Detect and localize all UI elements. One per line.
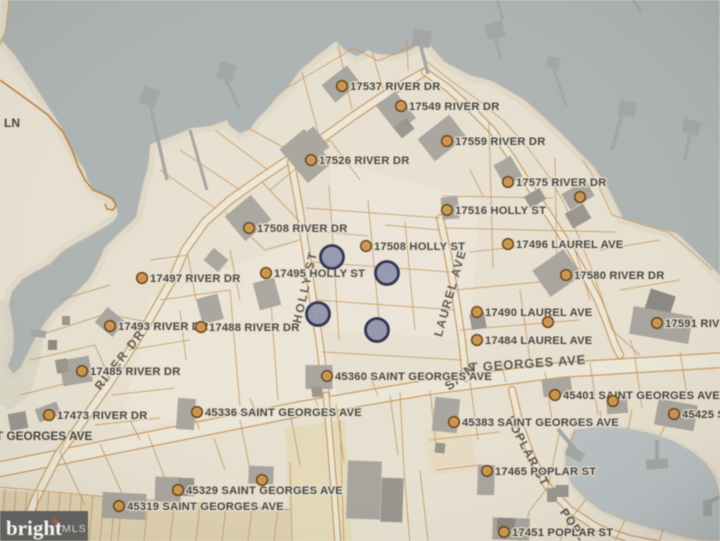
svg-text:✱: ✱ [52, 517, 59, 526]
svg-text:MLS: MLS [62, 523, 87, 535]
